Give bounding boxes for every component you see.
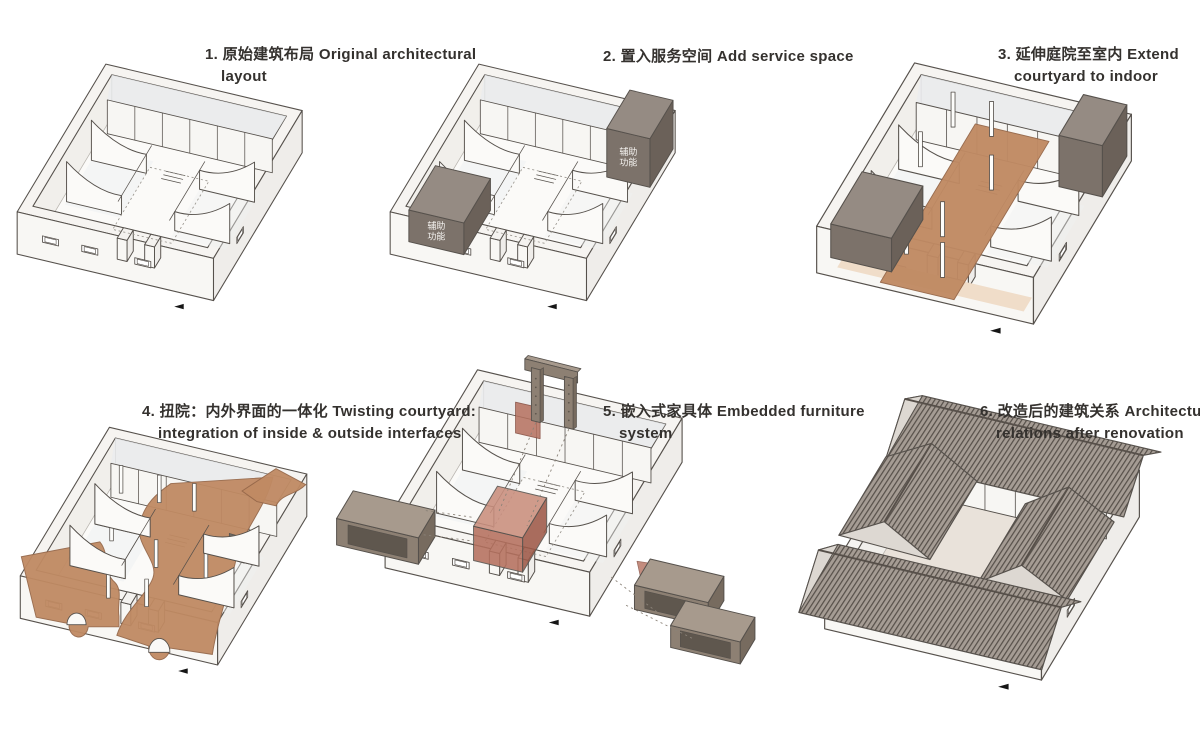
caption-line: 3. 延伸庭院至室内 Extend <box>998 46 1179 63</box>
svg-text:辅助: 辅助 <box>427 220 445 231</box>
caption-step-3: 3. 延伸庭院至室内 Extend courtyard to indoor <box>998 44 1179 87</box>
svg-text:辅助: 辅助 <box>619 146 637 157</box>
caption-line: relations after renovation <box>980 423 1200 445</box>
caption-line: 5. 嵌入式家具体 Embedded furniture <box>603 403 865 420</box>
panel-step-4 <box>0 408 380 748</box>
axonometric-step-3 <box>792 42 1200 415</box>
axonometric-step-1 <box>0 45 375 383</box>
caption-step-5: 5. 嵌入式家具体 Embedded furniture system <box>603 401 865 444</box>
renovation-process-diagram: 辅助功能辅助功能 1. 原始建筑布局 Original architectura… <box>0 0 1200 754</box>
base-house <box>17 64 302 309</box>
caption-line: courtyard to indoor <box>998 66 1179 88</box>
svg-text:功能: 功能 <box>619 156 637 167</box>
axonometric-step-2: 辅助功能辅助功能 <box>368 45 748 383</box>
axonometric-step-4 <box>0 408 380 748</box>
axonometric-step-6 <box>800 398 1200 754</box>
caption-step-1: 1. 原始建筑布局 Original architectural layout <box>205 44 476 87</box>
caption-step-4: 4. 扭院：内外界面的一体化 Twisting courtyard: integ… <box>142 401 476 444</box>
caption-line: integration of inside & outside interfac… <box>142 423 476 445</box>
svg-text:功能: 功能 <box>427 231 445 242</box>
panel-step-6 <box>800 398 1200 754</box>
panel-step-2: 辅助功能辅助功能 <box>368 45 748 383</box>
caption-line: system <box>603 423 865 445</box>
panel-step-3 <box>792 42 1200 415</box>
caption-line: 4. 扭院：内外界面的一体化 Twisting courtyard: <box>142 403 476 420</box>
caption-line: layout <box>205 66 476 88</box>
caption-line: 2. 置入服务空间 Add service space <box>603 48 854 65</box>
caption-step-2: 2. 置入服务空间 Add service space <box>603 46 854 68</box>
caption-line: 1. 原始建筑布局 Original architectural <box>205 46 476 63</box>
panel-step-1 <box>0 45 375 383</box>
caption-line: 6. 改造后的建筑关系 Architectural <box>980 403 1200 420</box>
caption-step-6: 6. 改造后的建筑关系 Architectural relations afte… <box>980 401 1200 444</box>
